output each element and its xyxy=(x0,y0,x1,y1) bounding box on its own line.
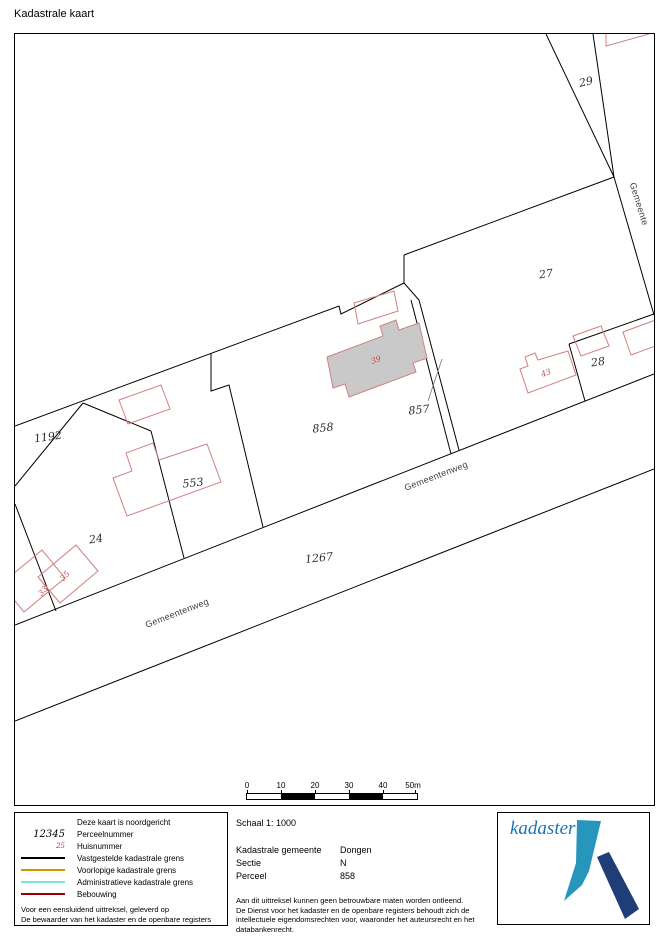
scale-tick-0: 0 xyxy=(245,781,249,790)
building-house-24 xyxy=(113,443,221,516)
kadaster-logo-box: kadaster xyxy=(497,812,650,925)
parcel-label-27: 27 xyxy=(538,267,554,282)
scale-tick-10: 10 xyxy=(277,781,286,790)
detail-row-perceel: Perceel 858 xyxy=(236,870,498,883)
parcel-label-553: 553 xyxy=(182,475,204,490)
legend-line-bebouwing xyxy=(21,893,65,895)
legend-line-voorlopig xyxy=(21,869,65,871)
scale-tick-20: 20 xyxy=(311,781,320,790)
legend-row-vastgestelde-grens: Vastgestelde kadastrale grens xyxy=(15,852,227,864)
page-title: Kadastrale kaart xyxy=(14,8,94,20)
building-small-858 xyxy=(354,291,398,324)
legend-row-huisnummer: 25 Huisnummer xyxy=(15,840,227,852)
logo-bar-shape xyxy=(597,852,639,919)
legend-row-administratieve-grens: Administratieve kadastrale grens xyxy=(15,876,227,888)
boundary-553-858 xyxy=(211,353,263,527)
parcel-label-857: 857 xyxy=(408,402,430,417)
legend-sample-parcelnumber: 12345 xyxy=(15,829,77,840)
parcel-label-24: 24 xyxy=(88,532,104,547)
building-33 xyxy=(15,550,65,612)
detail-row-gemeente: Kadastrale gemeente Dongen xyxy=(236,844,498,857)
parcel-label-858: 858 xyxy=(312,420,334,435)
disclaimer-text: Aan dit uittreksel kunnen geen betrouwba… xyxy=(236,896,498,934)
legend-row-perceelnummer: 12345 Perceelnummer xyxy=(15,828,227,840)
strip-857-left xyxy=(411,300,451,454)
scale-bar: 0 10 20 30 40 50m xyxy=(246,781,418,801)
building-outlines xyxy=(15,34,654,612)
logo-pen-shape xyxy=(564,820,601,901)
legend-line-vastgesteld xyxy=(21,857,65,859)
road-lower-edge xyxy=(15,469,654,721)
legend-row-north: Deze kaart is noordgericht xyxy=(15,816,227,828)
detail-value-perceel: 858 xyxy=(340,870,355,883)
extract-details: Schaal 1: 1000 Kadastrale gemeente Donge… xyxy=(236,818,498,934)
legend-sample-housenumber: 25 xyxy=(15,842,77,850)
legend-north-note: Deze kaart is noordgericht xyxy=(77,818,170,827)
legend-row-bebouwing: Bebouwing xyxy=(15,888,227,900)
building-top-right xyxy=(606,34,649,46)
parcel-label-28: 28 xyxy=(590,355,606,370)
legend-footer-note: Voor een eensluidend uittreksel, gelever… xyxy=(15,905,227,925)
road-upper-edge xyxy=(15,374,654,625)
building-553 xyxy=(119,385,170,424)
scale-tick-40: 40 xyxy=(379,781,388,790)
cadastral-map: 29 27 28 858 857 553 1192 24 1267 39 43 … xyxy=(14,33,655,806)
scale-bar-strip xyxy=(246,793,418,800)
kadaster-logo-icon xyxy=(498,813,649,924)
detail-value-gemeente: Dongen xyxy=(340,844,372,857)
legend-line-administratief xyxy=(21,881,65,883)
boundary-27-28 xyxy=(569,314,654,344)
boundary-1192-24 xyxy=(15,403,83,486)
legend-box: Deze kaart is noordgericht 12345 Perceel… xyxy=(14,812,228,926)
map-geometry xyxy=(15,34,654,805)
scale-tick-30: 30 xyxy=(345,781,354,790)
legend-row-voorlopige-grens: Voorlopige kadastrale grens xyxy=(15,864,227,876)
scale-label: Schaal 1: 1000 xyxy=(236,818,498,828)
detail-value-sectie: N xyxy=(340,857,347,870)
scale-tick-50m: 50m xyxy=(405,781,421,790)
detail-row-sectie: Sectie N xyxy=(236,857,498,870)
